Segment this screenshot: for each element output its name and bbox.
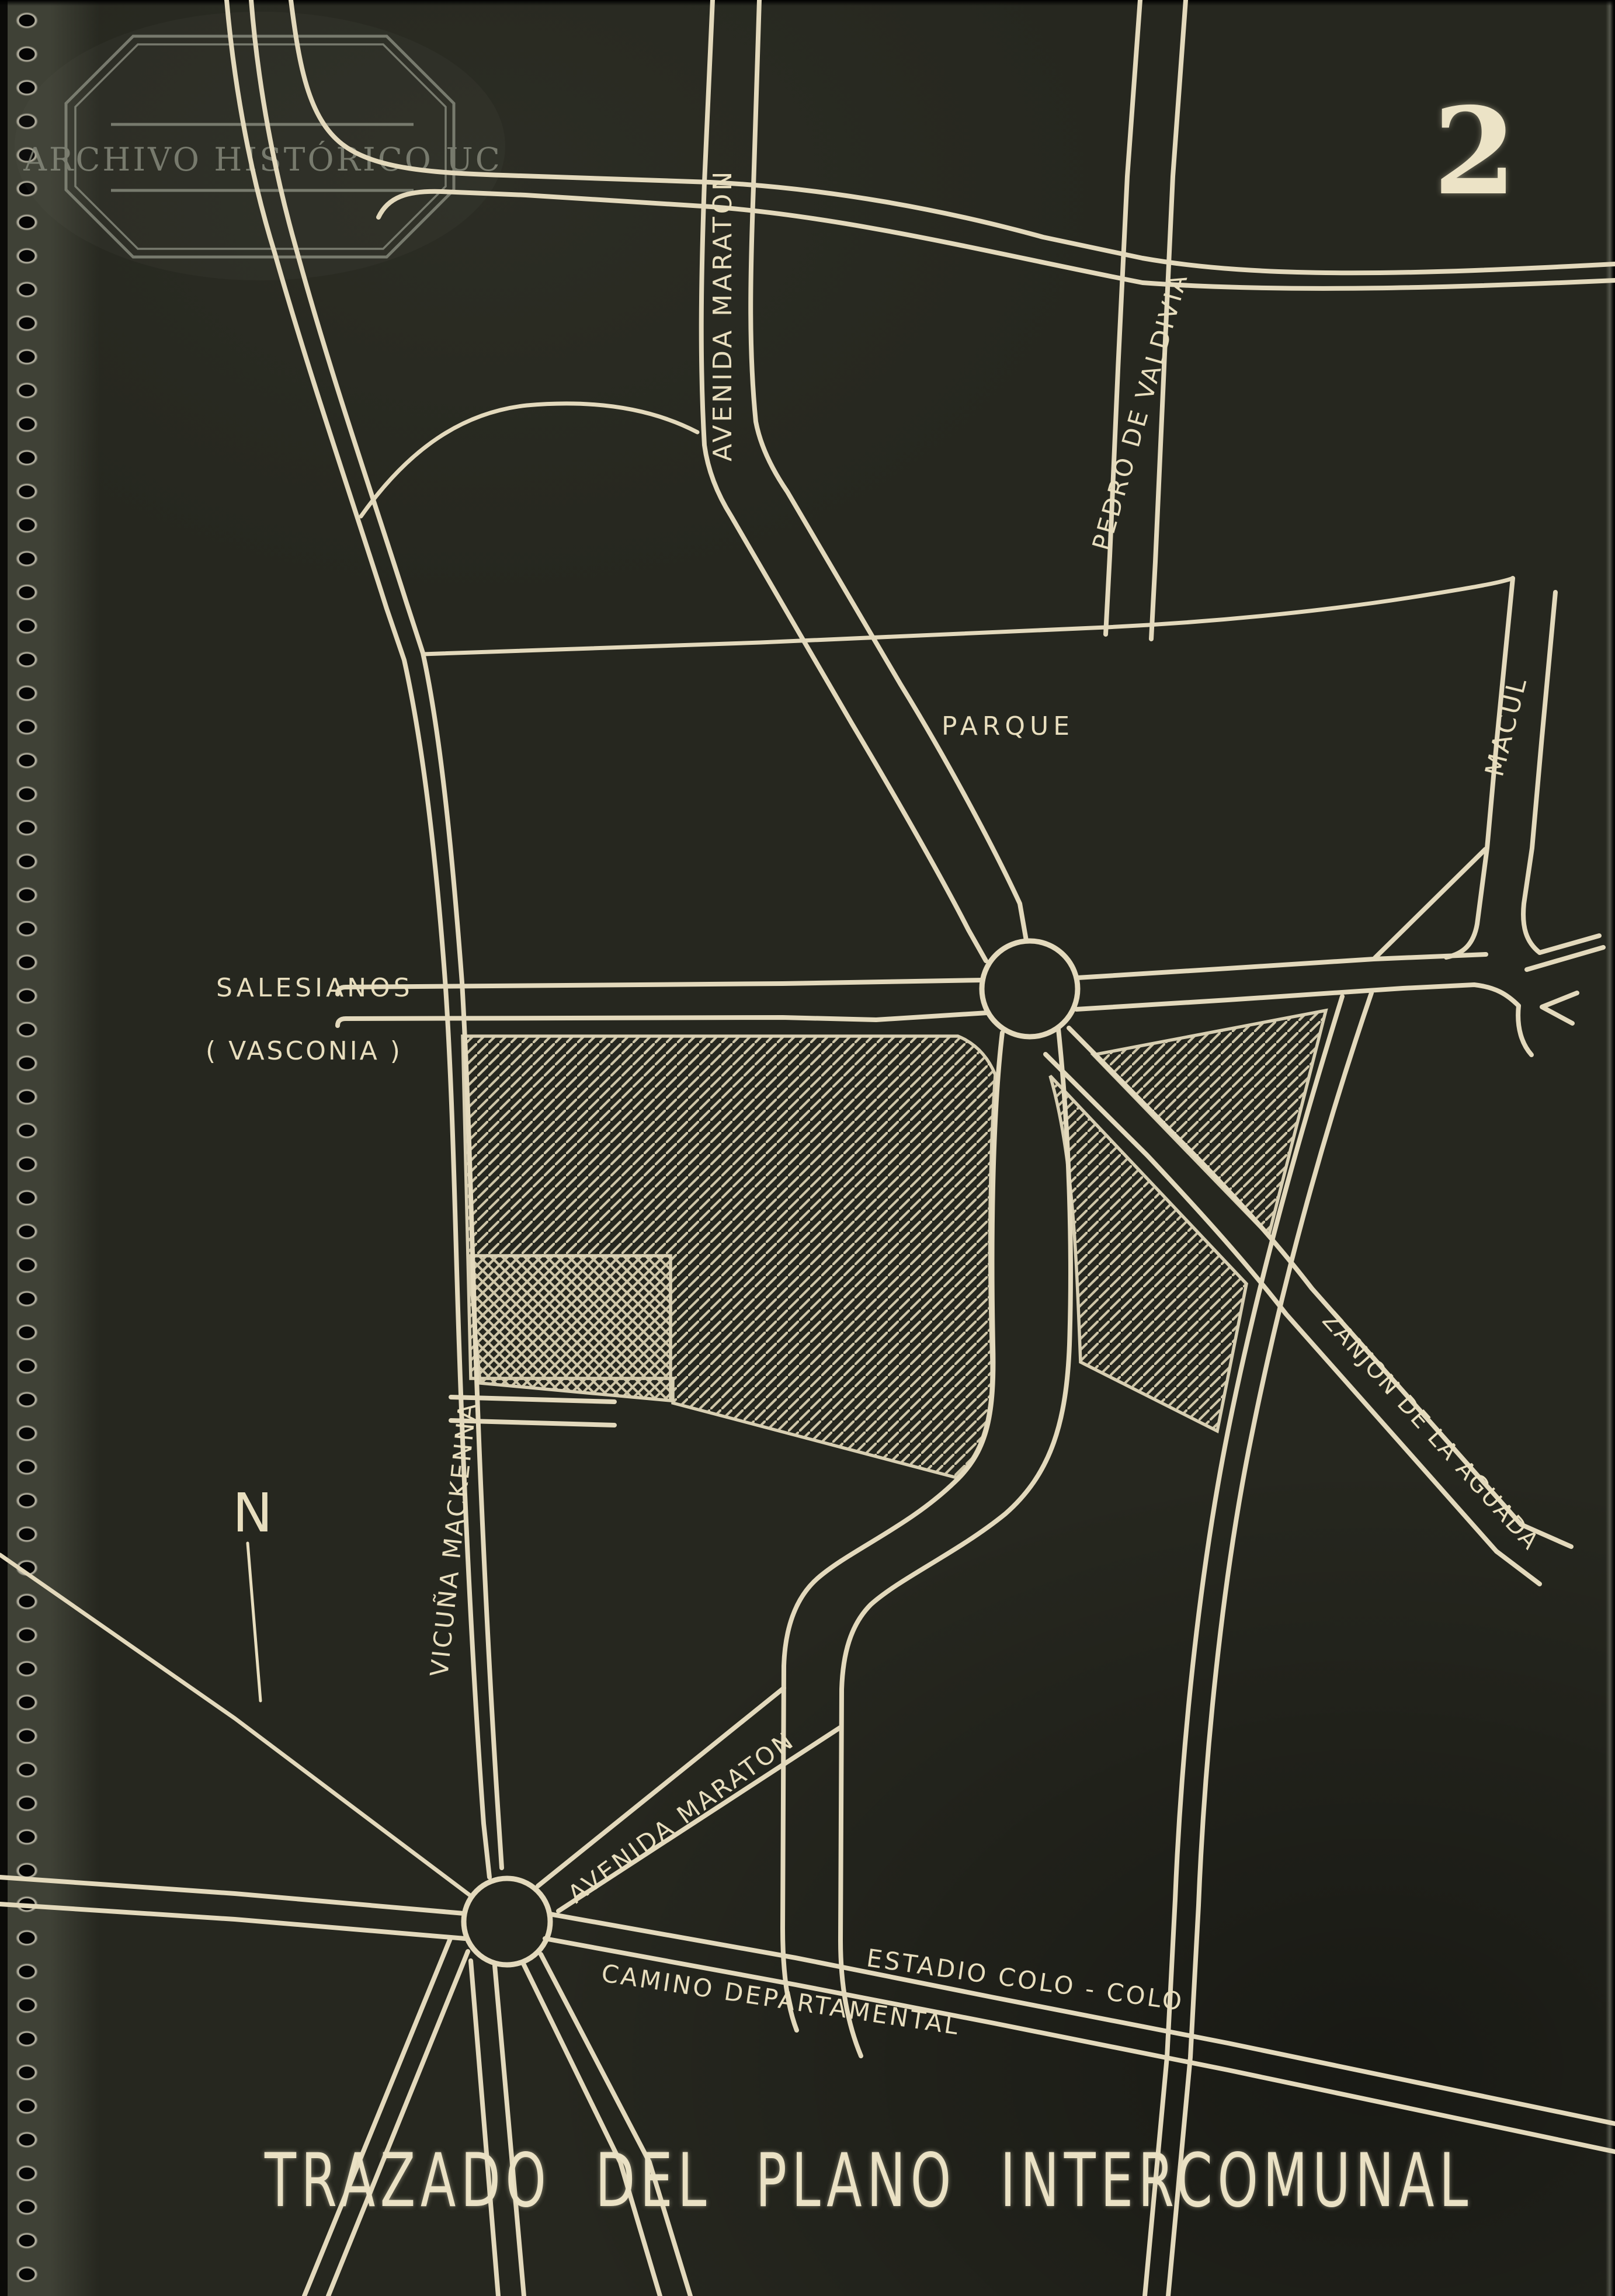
road-salesianos-lower bbox=[338, 1013, 987, 1026]
road-east-west-parque bbox=[423, 578, 1513, 654]
road-avenida-maraton-norte-east bbox=[751, 0, 1026, 940]
intercomunal-plan-map: ARCHIVO HISTÓRICO UC bbox=[0, 0, 1615, 2296]
road-northwest-spoke bbox=[0, 1555, 471, 1896]
road-east-west-macul-upper bbox=[1078, 954, 1486, 978]
road-southeast-spoke-b bbox=[523, 1964, 660, 2296]
road-southwest-spoke-b bbox=[304, 1939, 450, 2296]
roundabout-north bbox=[982, 941, 1078, 1037]
road-macul-east bbox=[1523, 592, 1555, 953]
map-title: TRAZADO DEL PLANO INTERCOMUNAL bbox=[265, 2137, 1277, 2224]
road-salesianos-upper bbox=[338, 980, 983, 994]
street-label-pedro-de-valdivia: PEDRO DE VALDIVIA bbox=[1087, 269, 1194, 554]
street-label-vasconia: ( VASCONIA ) bbox=[206, 1036, 402, 1066]
road-zanjon-fishtail-b bbox=[1496, 1551, 1540, 1584]
road-fork-chevron bbox=[1542, 993, 1577, 1023]
road-camino-departamental-upper bbox=[550, 1914, 1615, 2124]
street-label-avenida-maraton-norte: AVENIDA MARATON bbox=[708, 169, 738, 461]
road-avenida-maraton-norte-west bbox=[701, 0, 986, 961]
hatched-areas bbox=[463, 1010, 1326, 1478]
street-label-parque: PARQUE bbox=[942, 711, 1074, 741]
road-link-curve bbox=[361, 404, 697, 516]
street-label-avenida-maraton-sur: AVENIDA MARATON bbox=[562, 1725, 800, 1909]
road-camino-departamental-lower bbox=[545, 1939, 1615, 2152]
north-indicator: N bbox=[232, 1482, 274, 1701]
road-east-west-macul-lower bbox=[1076, 985, 1519, 1009]
street-label-salesianos: SALESIANOS bbox=[216, 973, 414, 1003]
street-label-macul: MACUL bbox=[1479, 673, 1533, 780]
road-southwest-spoke-a bbox=[328, 1951, 468, 2296]
road-south-spoke-b bbox=[471, 1961, 498, 2296]
north-label: N bbox=[232, 1482, 274, 1544]
page-number: 2 bbox=[1411, 82, 1539, 222]
roundabout-south bbox=[464, 1878, 550, 1965]
scanned-map-page: ARCHIVO HISTÓRICO UC bbox=[0, 0, 1615, 2296]
archive-watermark: ARCHIVO HISTÓRICO UC bbox=[15, 12, 505, 280]
road-south-spoke-a bbox=[495, 1965, 524, 2296]
road-fork-stub-south bbox=[1518, 1006, 1531, 1055]
road-vicuna-mackenna-east bbox=[251, 0, 502, 1868]
road-southeast-spoke-a bbox=[541, 1954, 690, 2296]
street-label-zanjon-de-la-aguada: ZANJON DE LA AGUADA bbox=[1317, 1307, 1545, 1556]
hatch-area-crosshatch bbox=[468, 1256, 671, 1401]
north-line bbox=[248, 1543, 261, 1701]
